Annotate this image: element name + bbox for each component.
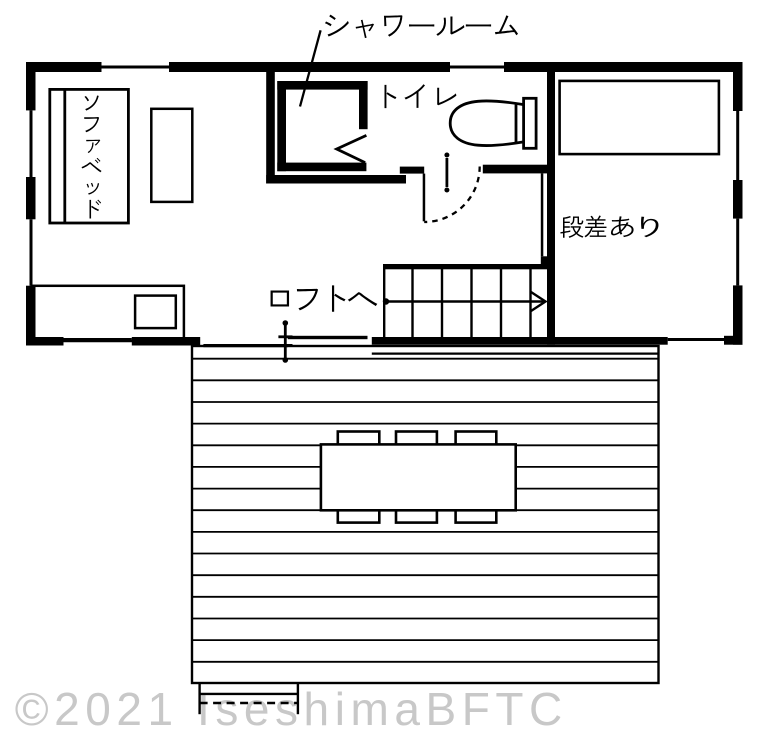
svg-text:©2021 IseshimaBFTC: ©2021 IseshimaBFTC	[15, 683, 568, 735]
